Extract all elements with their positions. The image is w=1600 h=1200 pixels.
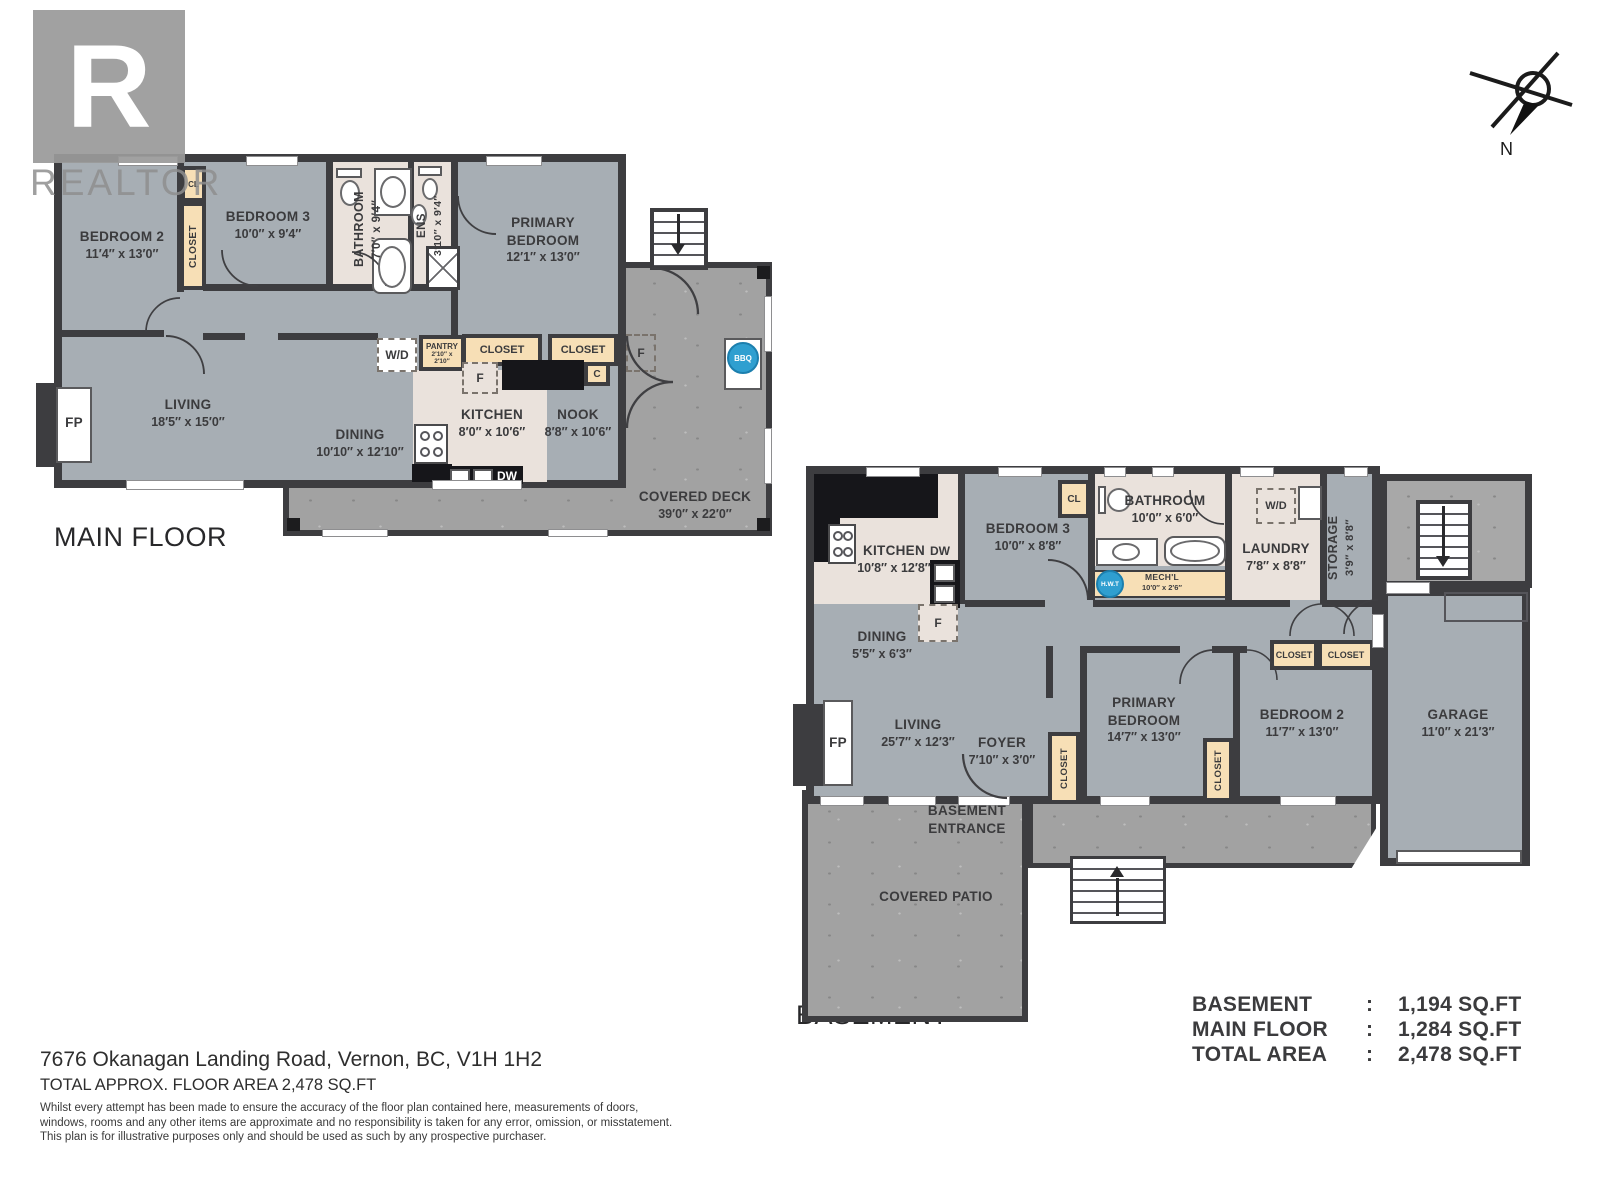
stair-arrow-stem [1116,878,1119,916]
wd-label: W/D [1265,500,1286,512]
bedroom3-closet: CL [1058,480,1090,518]
wall [1233,646,1240,804]
wall [203,333,245,340]
garage-label: GARAGE11′0″ x 21′3″ [1394,706,1522,740]
closet-label: CLOSET [1213,750,1224,791]
window [1152,467,1174,477]
wall [1046,646,1053,698]
garage-step [1444,592,1528,622]
washer-dryer-box: W/D [1256,488,1296,524]
covered-patio-label: COVERED PATIO [858,888,1014,906]
deck-post [287,518,300,531]
door-arc [1247,650,1277,680]
primary-closet: CLOSET [1203,738,1233,802]
property-address: 7676 Okanagan Landing Road, Vernon, BC, … [40,1048,672,1072]
area-summary: BASEMENT:1,194 SQ.FT MAIN FLOOR:1,284 SQ… [1192,993,1522,1067]
closet-label: CLOSET [480,344,525,356]
wall [1080,646,1087,804]
closet-label: CL [1067,494,1080,505]
door-arc [1290,604,1322,636]
closet-label: CLOSET [561,344,606,356]
burner-icon [833,531,843,541]
washer-dryer-box: W/D [377,338,417,372]
stair-arrow-stem [677,214,680,246]
fireplace-label: FP [824,734,852,752]
window [1280,796,1336,806]
laundry-tub [1298,486,1322,520]
basement-bedroom3-label: BEDROOM 310′0″ x 8′8″ [968,520,1088,554]
closet-label: CLOSET [1276,650,1313,660]
bathroom-label: BATHROOM [352,170,366,288]
bedroom2-closet-2: CLOSET [1318,640,1374,670]
window [998,467,1042,477]
bbq-icon: BBQ [727,342,759,374]
mechanical-label: MECH'L 10′0″ x 2′6″ [1126,572,1198,593]
door-arc [1180,650,1214,684]
sink-basin [380,176,406,208]
wall [1212,646,1247,653]
closet-label: CLOSET [188,225,199,268]
fireplace-chimney [793,704,825,786]
floorplan-page: CL CLOSET CLOSET CLOSET C PANTRY2′10″ x … [0,0,1600,1200]
closet-label: CLOSET [1059,748,1070,789]
summary-label: BASEMENT [1192,993,1360,1017]
summary-label: TOTAL AREA [1192,1043,1360,1067]
hall-closet: CLOSET [180,202,206,290]
summary-colon: : [1366,1018,1392,1042]
disclaimer-line: Whilst every attempt has been made to en… [40,1101,672,1116]
deck-rail-gap [322,529,388,537]
basement-primary-label: PRIMARY BEDROOM14′7″ x 13′0″ [1090,694,1198,745]
window [866,467,920,477]
stair-arrow-stem [1442,506,1445,558]
sink-basin [1112,543,1140,561]
realtor-logo: R [33,10,185,163]
basement-kitchen-label: KITCHEN10′8″ x 12′8″ [836,542,952,576]
storage-dims: 3′9″ x 8′8″ [1344,492,1356,604]
kitchen-counter [502,360,584,390]
summary-value: 1,194 SQ.FT [1398,993,1522,1017]
window [246,156,298,166]
wall [278,333,378,340]
burner-icon [843,531,853,541]
footer-block: 7676 Okanagan Landing Road, Vernon, BC, … [40,1048,672,1145]
fridge-label: F [476,371,483,385]
ens-dims: 3′10″ x 9′4″ [432,176,444,276]
nook-label: NOOK8′8″ x 10′6″ [530,406,626,440]
deck-rail-gap [548,529,608,537]
window [1386,582,1430,594]
realtor-wordmark: REALTOR [30,162,222,204]
bathroom-dims: 7′0″ x 9′4″ [371,170,383,288]
wall [1085,646,1180,653]
bedroom2-closet-1: CLOSET [1270,640,1318,670]
window [1100,796,1150,806]
door-arc [1048,560,1088,600]
window [820,796,864,806]
bedroom3-label: BEDROOM 310′0″ x 9′4″ [208,208,328,242]
deck-rail-gap [764,428,772,484]
garage-door [1396,850,1522,864]
stair-arrow-down-icon [1436,556,1450,567]
basement-bedroom2-label: BEDROOM 211′7″ x 13′0″ [1242,706,1362,740]
pantry-label: PANTRY2′10″ x 2′10″ [423,342,461,365]
compass-icon: N [1440,45,1590,163]
door-arc [146,298,180,332]
window [1104,467,1126,477]
bbq-label: BBQ [734,354,752,363]
wall [1093,600,1290,607]
toilet-tank [418,166,442,176]
window [126,480,244,490]
basement-dining-label: DINING5′5″ x 6′3″ [830,628,934,662]
stair-arrow-up-icon [1110,866,1124,877]
dining-label: DINING10′10″ x 12′10″ [298,426,422,460]
c-box: C [584,362,610,386]
storage-label: STORAGE [1326,492,1340,604]
main-floor-title: MAIN FLOOR [54,522,227,553]
sink [934,585,955,603]
fridge-box: F [462,362,498,394]
primary-bedroom-label: PRIMARY BEDROOM12′1″ x 13′0″ [468,214,618,265]
foyer-label: FOYER7′10″ x 3′0″ [952,734,1052,768]
door-arc [652,268,698,314]
door-arc [627,382,673,428]
closet-label: CLOSET [1328,650,1365,660]
summary-label: MAIN FLOOR [1192,1018,1360,1042]
deck-post [757,266,770,279]
c-label: C [593,369,600,380]
laundry-label: LAUNDRY7′8″ x 8′8″ [1226,540,1326,574]
door-arc [627,336,673,382]
foyer-closet: CLOSET [1048,732,1080,804]
pantry-box: PANTRY2′10″ x 2′10″ [419,335,465,371]
wd-label: W/D [385,348,408,362]
disclaimer-line: This plan is for illustrative purposes o… [40,1130,672,1145]
deck-rail-gap [764,296,772,352]
window [486,156,542,166]
hwt-label: H.W.T [1101,581,1119,588]
living-label: LIVING18′5″ x 15′0″ [128,396,248,430]
window [1344,467,1368,477]
burner-icon [433,447,443,457]
ens-label: ENS [416,196,428,256]
realtor-logo-letter: R [66,28,151,146]
covered-deck-label: COVERED DECK39′0″ x 22′0″ [620,488,770,522]
summary-value: 2,478 SQ.FT [1398,1043,1522,1067]
door-arc [166,336,204,374]
bathtub-basin [1170,540,1220,562]
disclaimer-line: windows, rooms and any other items are a… [40,1116,672,1131]
wall [965,600,1045,607]
compass-north-label: N [1500,139,1513,159]
basement-bathroom-label: BATHROOM10′0″ x 6′0″ [1103,492,1227,526]
summary-colon: : [1366,1043,1392,1067]
window [1240,467,1274,477]
fridge-label: F [934,616,941,630]
bedroom2-label: BEDROOM 211′4″ x 13′0″ [62,228,182,262]
stair-arrow-down-icon [671,244,685,255]
summary-colon: : [1366,993,1392,1017]
total-area-line: TOTAL APPROX. FLOOR AREA 2,478 SQ.FT [40,1076,672,1095]
door-arc [1344,600,1378,634]
basement-entrance-label: BASEMENT ENTRANCE [912,802,1022,837]
door-arc [222,250,258,286]
summary-value: 1,284 SQ.FT [1398,1018,1522,1042]
hot-water-tank-icon: H.W.T [1096,570,1124,598]
window [432,480,522,490]
fireplace-label: FP [58,414,90,432]
